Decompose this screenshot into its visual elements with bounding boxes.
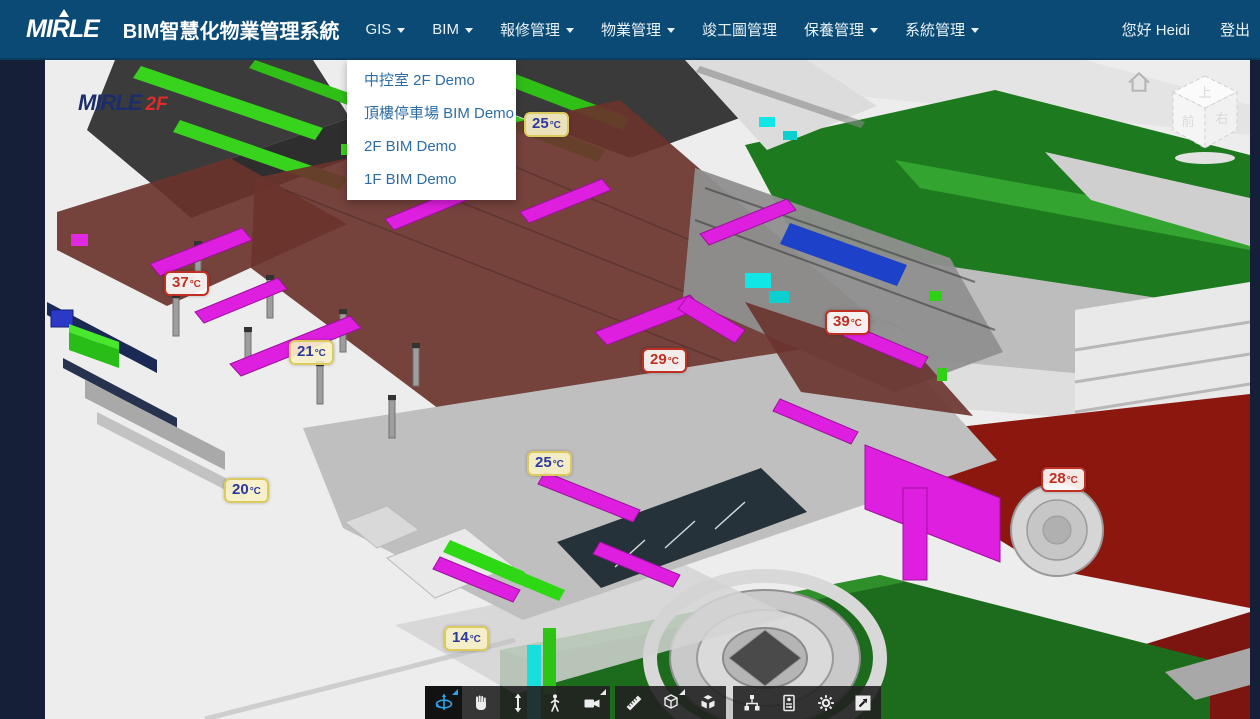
- temp-value: 21: [297, 344, 314, 361]
- view-cube-icon: 上 前 右: [1165, 70, 1245, 170]
- temp-unit: °C: [1067, 475, 1078, 486]
- menu-item-repair-mgmt[interactable]: 報修管理: [500, 19, 574, 40]
- temp-unit: °C: [250, 486, 261, 497]
- model-tree-icon: [742, 693, 762, 713]
- fullscreen-icon: [853, 693, 873, 713]
- settings-button[interactable]: [807, 686, 844, 719]
- menu-label: 物業管理: [601, 19, 661, 40]
- pan-hand-icon: [471, 693, 491, 713]
- mirle-logo[interactable]: MIRLE: [26, 15, 99, 44]
- fullscreen-button[interactable]: [844, 686, 881, 719]
- menu-label: 竣工圖管理: [702, 19, 777, 40]
- left-edge-strip: [0, 60, 45, 719]
- temp-value: 14: [452, 630, 469, 647]
- cube-face-top: 上: [1198, 85, 1211, 100]
- temp-value: 28: [1049, 471, 1066, 488]
- temp-value: 29: [650, 352, 667, 369]
- temp-unit: °C: [668, 356, 679, 367]
- view-cube[interactable]: 上 前 右: [1165, 70, 1245, 175]
- menu-label: 系統管理: [905, 19, 965, 40]
- watermark-floor: 2F: [145, 94, 167, 116]
- section-tool-button[interactable]: [652, 686, 689, 719]
- right-edge-strip: [1250, 60, 1260, 719]
- model-tree-button[interactable]: [733, 686, 770, 719]
- temp-value: 25: [532, 116, 549, 133]
- navbar-right: 您好 Heidi 登出: [1122, 19, 1260, 40]
- menu-item-gis[interactable]: GIS: [365, 21, 405, 38]
- temp-label-39c[interactable]: 39 °C: [825, 310, 870, 335]
- temp-unit: °C: [851, 318, 862, 329]
- dropdown-item-control-room-2f[interactable]: 中控室 2F Demo: [347, 64, 516, 97]
- menu-item-property-mgmt[interactable]: 物業管理: [601, 19, 675, 40]
- explode-cube-icon: [698, 693, 718, 713]
- logout-link[interactable]: 登出: [1220, 19, 1250, 40]
- toolbar-analysis-group: [615, 686, 726, 719]
- temp-unit: °C: [315, 348, 326, 359]
- temp-label-14c[interactable]: 14 °C: [444, 626, 489, 651]
- temp-value: 25: [535, 455, 552, 472]
- temp-label-37c[interactable]: 37 °C: [164, 271, 209, 296]
- camera-icon: [582, 693, 602, 713]
- properties-panel-button[interactable]: [770, 686, 807, 719]
- walk-person-icon: [545, 693, 565, 713]
- bim-dropdown-menu: 中控室 2F Demo 頂樓停車場 BIM Demo 2F BIM Demo 1…: [347, 60, 516, 200]
- logo-triangle-icon: [59, 9, 69, 17]
- temp-value: 37: [172, 275, 189, 292]
- pan-tool-button[interactable]: [462, 686, 499, 719]
- caret-down-icon: [870, 28, 878, 33]
- temp-label-21c[interactable]: 21 °C: [289, 340, 334, 365]
- walk-tool-button[interactable]: [536, 686, 573, 719]
- menu-item-asbuilt-mgmt[interactable]: 竣工圖管理: [702, 19, 777, 40]
- top-navbar: MIRLE BIM智慧化物業管理系統 GIS BIM 報修管理 物業管理 竣工圖…: [0, 0, 1260, 60]
- temp-label-29c[interactable]: 29 °C: [642, 348, 687, 373]
- menu-label: GIS: [365, 21, 391, 38]
- caret-down-icon: [971, 28, 979, 33]
- temp-unit: °C: [470, 634, 481, 645]
- menu-label: 報修管理: [500, 19, 560, 40]
- camera-view-button[interactable]: [573, 686, 610, 719]
- bim-viewer-canvas[interactable]: MIRLE 2F 25 °C 37 °C 21 °C 39 °C 29 °C 2…: [45, 60, 1250, 719]
- menu-item-maintenance-mgmt[interactable]: 保養管理: [804, 19, 878, 40]
- temp-unit: °C: [550, 120, 561, 131]
- temp-unit: °C: [190, 279, 201, 290]
- home-icon: [1125, 68, 1153, 96]
- viewer-watermark: MIRLE 2F: [78, 90, 168, 116]
- user-greeting[interactable]: 您好 Heidi: [1122, 19, 1190, 40]
- orbit-tool-button[interactable]: [425, 686, 462, 719]
- cube-face-front: 前: [1181, 114, 1194, 129]
- toolbar-panels-group: [733, 686, 881, 719]
- orbit-icon: [434, 693, 454, 713]
- caret-down-icon: [667, 28, 675, 33]
- mirle-logo-text: MIRLE: [26, 15, 99, 43]
- measure-tool-button[interactable]: [615, 686, 652, 719]
- temp-label-25c-top[interactable]: 25 °C: [524, 112, 569, 137]
- dropdown-item-2f-bim[interactable]: 2F BIM Demo: [347, 130, 516, 163]
- temp-label-25c-mid[interactable]: 25 °C: [527, 451, 572, 476]
- section-box-icon: [661, 693, 681, 713]
- main-menu: GIS BIM 報修管理 物業管理 竣工圖管理 保養管理 系統管理: [365, 19, 979, 40]
- menu-item-bim[interactable]: BIM: [432, 21, 473, 38]
- explode-tool-button[interactable]: [689, 686, 726, 719]
- temp-unit: °C: [553, 459, 564, 470]
- cube-face-right: 右: [1215, 111, 1228, 126]
- zoom-updown-icon: [508, 693, 528, 713]
- menu-label: BIM: [432, 21, 459, 38]
- watermark-brand: MIRLE: [78, 90, 141, 116]
- temp-label-28c[interactable]: 28 °C: [1041, 467, 1086, 492]
- ruler-icon: [624, 693, 644, 713]
- menu-item-system-mgmt[interactable]: 系統管理: [905, 19, 979, 40]
- temp-value: 20: [232, 482, 249, 499]
- bim-model-render: [45, 60, 1250, 719]
- caret-down-icon: [465, 28, 473, 33]
- dropdown-item-roof-parking[interactable]: 頂樓停車場 BIM Demo: [347, 97, 516, 130]
- app-title: BIM智慧化物業管理系統: [123, 15, 340, 44]
- properties-panel-icon: [779, 693, 799, 713]
- caret-down-icon: [397, 28, 405, 33]
- zoom-tool-button[interactable]: [499, 686, 536, 719]
- toolbar-navigation-group: [425, 686, 610, 719]
- caret-down-icon: [566, 28, 574, 33]
- home-view-button[interactable]: [1125, 68, 1153, 96]
- dropdown-item-1f-bim[interactable]: 1F BIM Demo: [347, 163, 516, 196]
- temp-value: 39: [833, 314, 850, 331]
- gear-icon: [816, 693, 836, 713]
- temp-label-20c[interactable]: 20 °C: [224, 478, 269, 503]
- menu-label: 保養管理: [804, 19, 864, 40]
